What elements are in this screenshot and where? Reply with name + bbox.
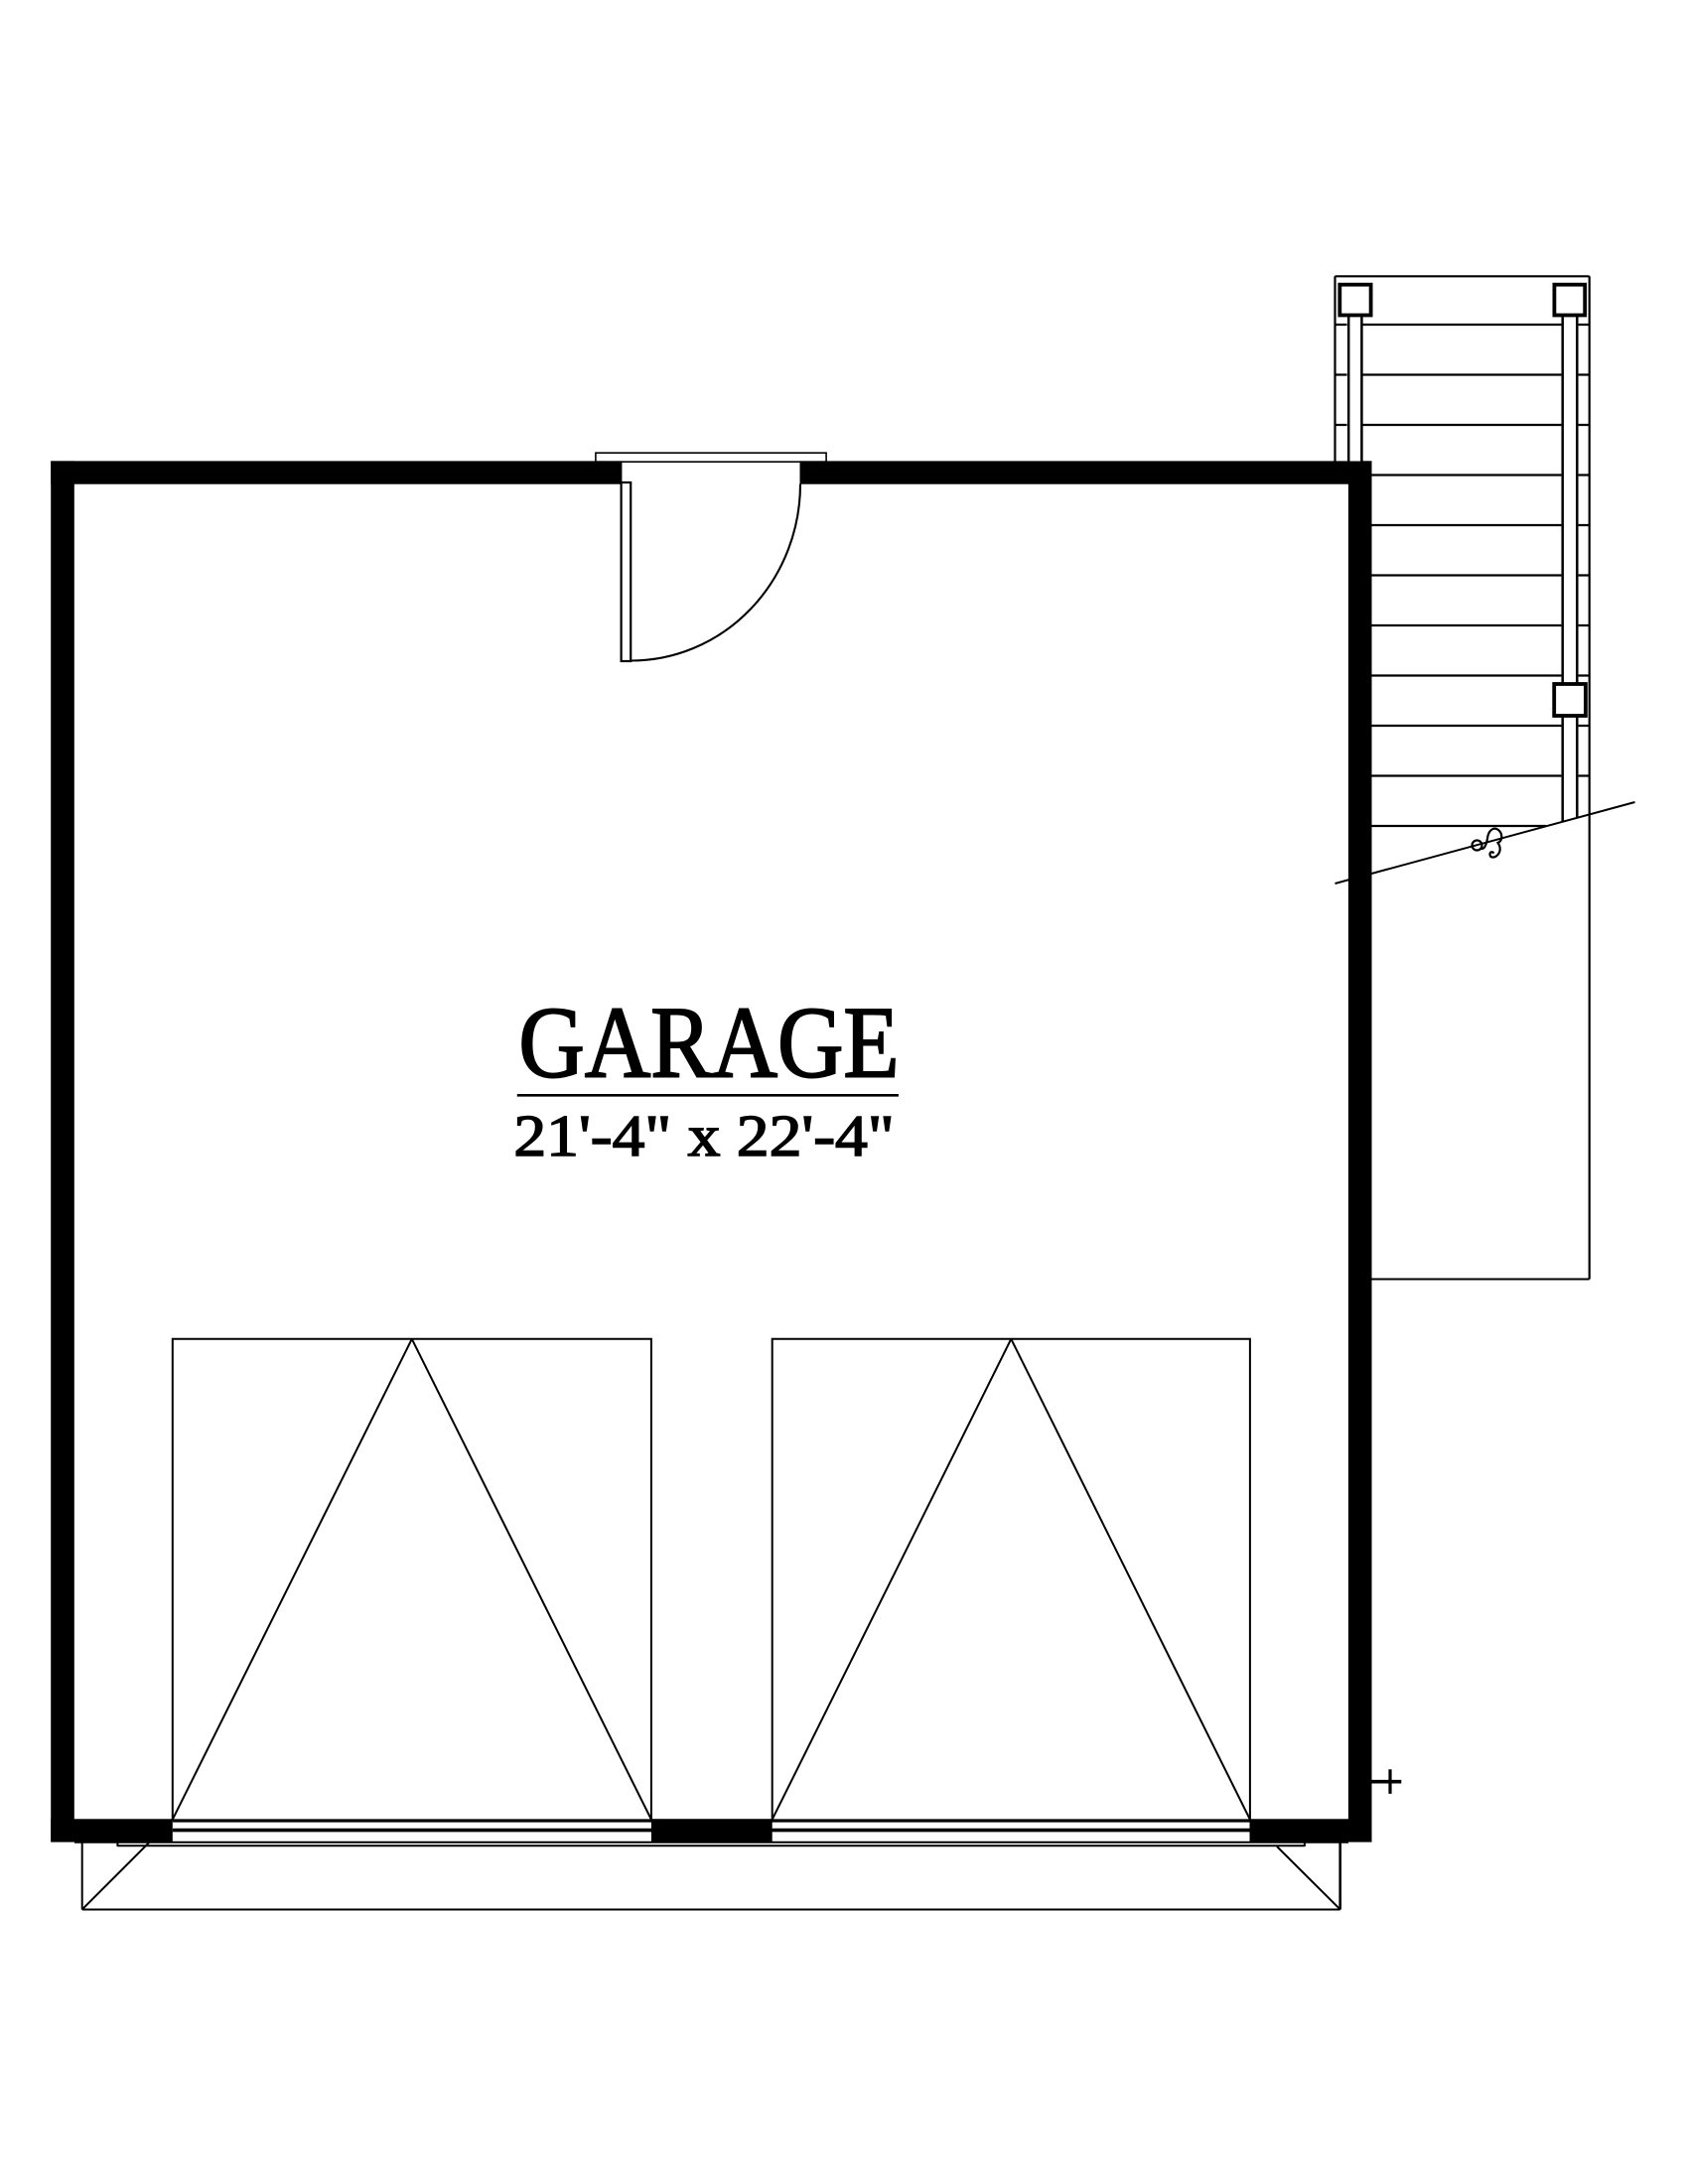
svg-text:GARAGE: GARAGE [518, 987, 899, 1100]
svg-text:21'-4" x 22'-4": 21'-4" x 22'-4" [513, 1104, 894, 1168]
